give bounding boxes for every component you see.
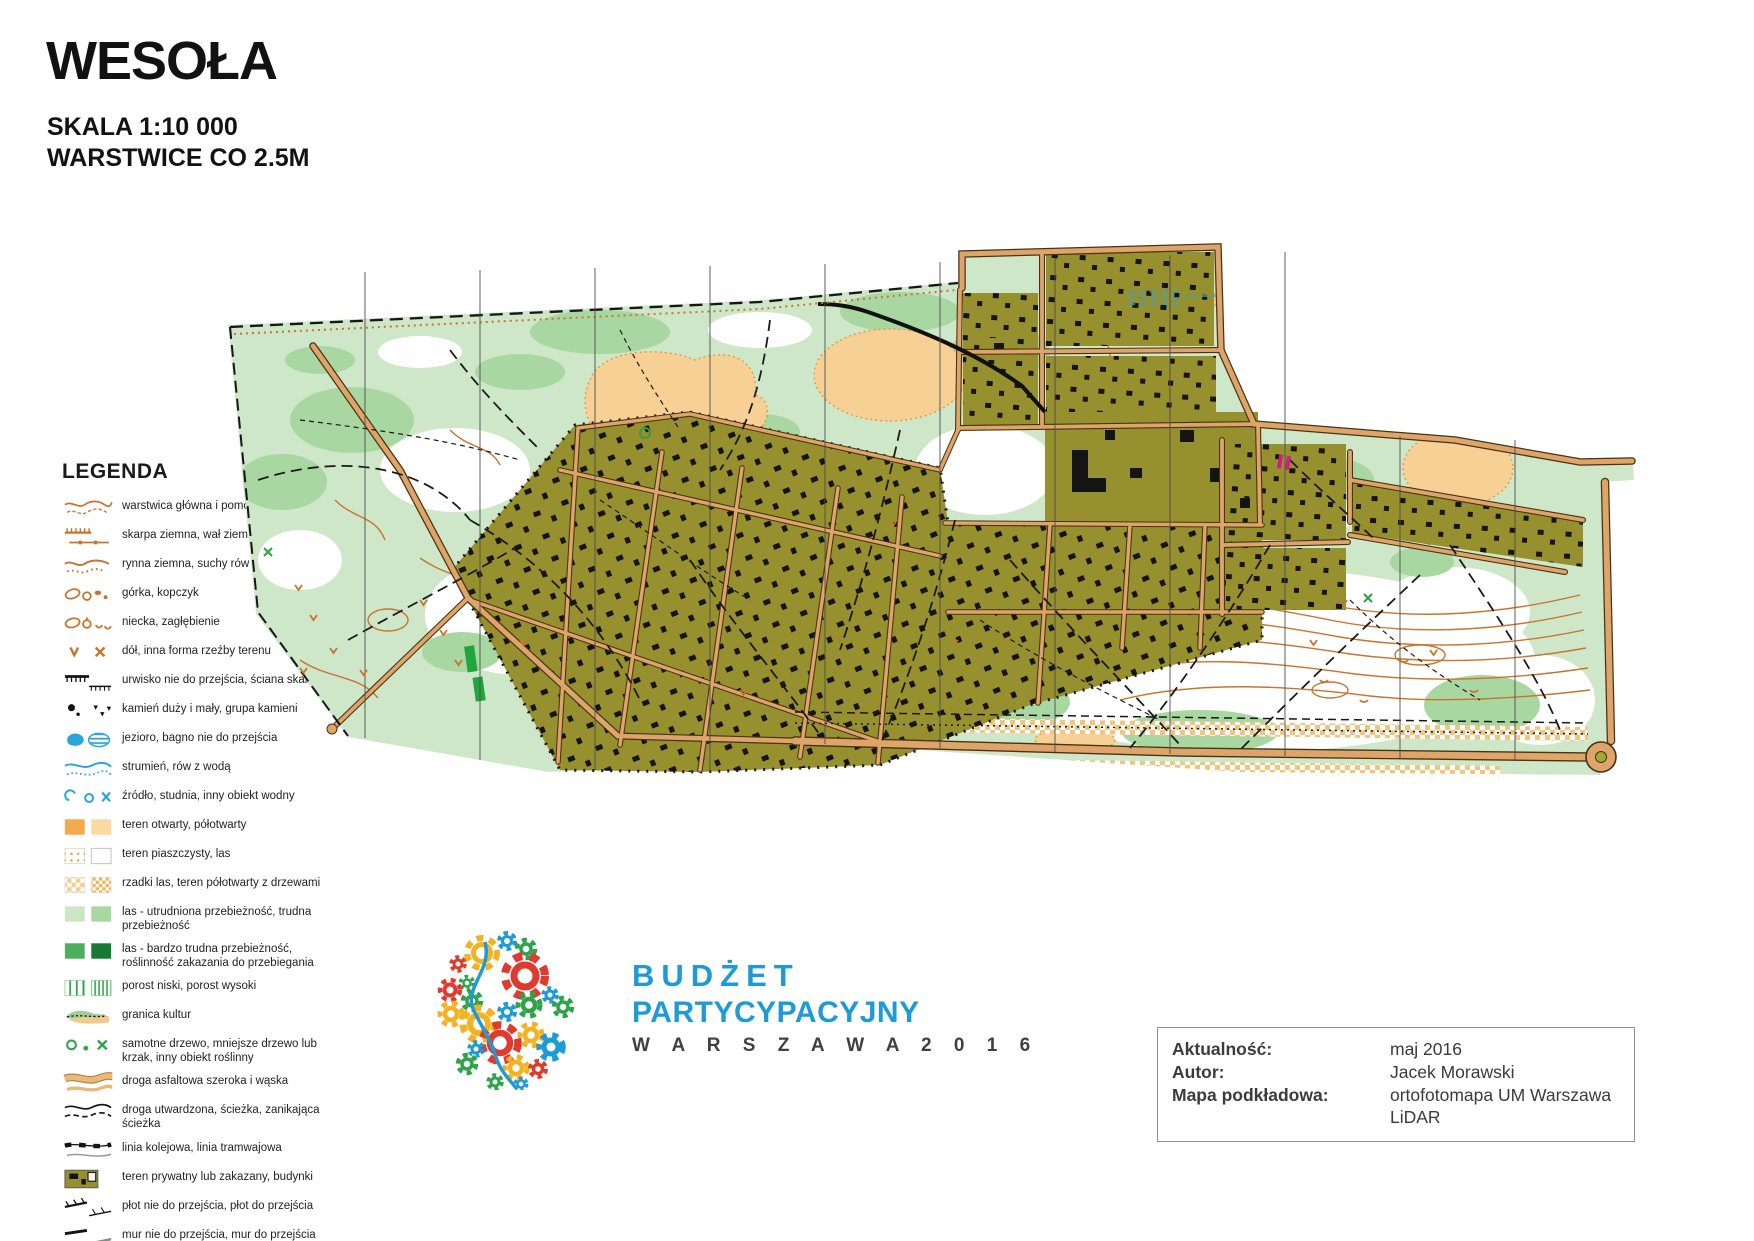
legend-item: porost niski, porost wysoki xyxy=(62,977,342,999)
credit-label: Autor: xyxy=(1172,1061,1390,1084)
credit-row: Mapa podkładowa: ortofotomapa UM Warszaw… xyxy=(1172,1084,1620,1130)
legend-item: teren prywatny lub zakazany, budynki xyxy=(62,1168,342,1190)
credit-value: maj 2016 xyxy=(1390,1038,1620,1061)
track-path-symbol xyxy=(62,1101,114,1123)
credit-label: Mapa podkładowa: xyxy=(1172,1084,1390,1130)
railway-symbol xyxy=(62,1139,114,1161)
legend-item: linia kolejowa, linia tramwajowa xyxy=(62,1139,342,1161)
legend-item: teren piaszczysty, las xyxy=(62,845,342,867)
roundabout xyxy=(1586,742,1616,772)
fight-forest-symbol xyxy=(62,940,114,962)
gears xyxy=(440,933,572,1090)
logo-line-budzet: BUDŻET xyxy=(632,960,1039,991)
lake-marsh-symbol xyxy=(62,729,114,751)
budzet-partycypacyjny-logo-graphic xyxy=(437,928,587,1090)
budzet-partycypacyjny-logo-text: BUDŻET PARTYCYPACYJNY W A R S Z A W A 2 … xyxy=(632,960,1039,1055)
legend-heading: LEGENDA xyxy=(62,460,168,484)
legend-item: samotne drzewo, mniejsze drzewo lub krza… xyxy=(62,1035,342,1065)
legend-item: las - bardzo trudna przebieżność, roślin… xyxy=(62,940,342,970)
erosion-gully-symbol xyxy=(62,555,114,577)
scale-line: SKALA 1:10 000 xyxy=(47,112,310,143)
sandy-ground-symbol xyxy=(62,845,114,867)
fence-symbol xyxy=(62,1197,114,1219)
legend-item: teren otwarty, półotwarty xyxy=(62,816,342,838)
asphalt-road-symbol xyxy=(62,1072,114,1094)
credit-row: Autor: Jacek Morawski xyxy=(1172,1061,1620,1084)
earth-bank-symbol xyxy=(62,526,114,548)
legend-item: mur nie do przejścia, mur do przejścia xyxy=(62,1226,342,1241)
legend-item: źródło, studnia, inny obiekt wodny xyxy=(62,787,342,809)
boulder-symbol xyxy=(62,700,114,722)
private-area-buildings-symbol xyxy=(62,1168,114,1190)
road-end xyxy=(327,724,337,734)
pit-symbol xyxy=(62,642,114,664)
credit-label: Aktualność: xyxy=(1172,1038,1390,1061)
slow-run-forest-symbol xyxy=(62,903,114,925)
credit-value: Jacek Morawski xyxy=(1390,1061,1620,1084)
cliff-symbol xyxy=(62,671,114,693)
legend-item: rzadki las, teren półotwarty z drzewami xyxy=(62,874,342,896)
rough-open-trees-symbol xyxy=(62,874,114,896)
knoll-symbol xyxy=(62,584,114,606)
credit-value: ortofotomapa UM Warszawa LiDAR xyxy=(1390,1084,1620,1130)
legend-item: droga asfaltowa szeroka i wąska xyxy=(62,1072,342,1094)
credit-row: Aktualność: maj 2016 xyxy=(1172,1038,1620,1061)
undergrowth-symbol xyxy=(62,977,114,999)
stream-symbol xyxy=(62,758,114,780)
logo-line-warszawa-2016: W A R S Z A W A 2 0 1 6 xyxy=(632,1036,1039,1055)
contour-interval-line: WARSTWICE CO 2.5M xyxy=(47,143,310,174)
wall-symbol xyxy=(62,1226,114,1241)
logo-line-partycypacyjny: PARTYCYPACYJNY xyxy=(632,998,1039,1028)
open-land-symbol xyxy=(62,816,114,838)
legend-item: las - utrudniona przebieżność, trudna pr… xyxy=(62,903,342,933)
legend-item: granica kultur xyxy=(62,1006,342,1028)
map-poster-page: WESOŁA SKALA 1:10 000 WARSTWICE CO 2.5M … xyxy=(0,0,1754,1241)
map-scale-info: SKALA 1:10 000 WARSTWICE CO 2.5M xyxy=(47,112,310,173)
cultivation-boundary-symbol xyxy=(62,1006,114,1028)
lone-tree-symbol xyxy=(62,1035,114,1057)
depression-symbol xyxy=(62,613,114,635)
legend-item: płot nie do przejścia, płot do przejścia xyxy=(62,1197,342,1219)
map-credits-box: Aktualność: maj 2016 Autor: Jacek Moraws… xyxy=(1157,1027,1635,1142)
orienteering-map xyxy=(210,228,1640,790)
contour-lines-symbol xyxy=(62,497,114,519)
legend-item: droga utwardzona, ścieżka, zanikająca śc… xyxy=(62,1101,342,1131)
well-spring-symbol xyxy=(62,787,114,809)
page-title: WESOŁA xyxy=(46,30,277,92)
